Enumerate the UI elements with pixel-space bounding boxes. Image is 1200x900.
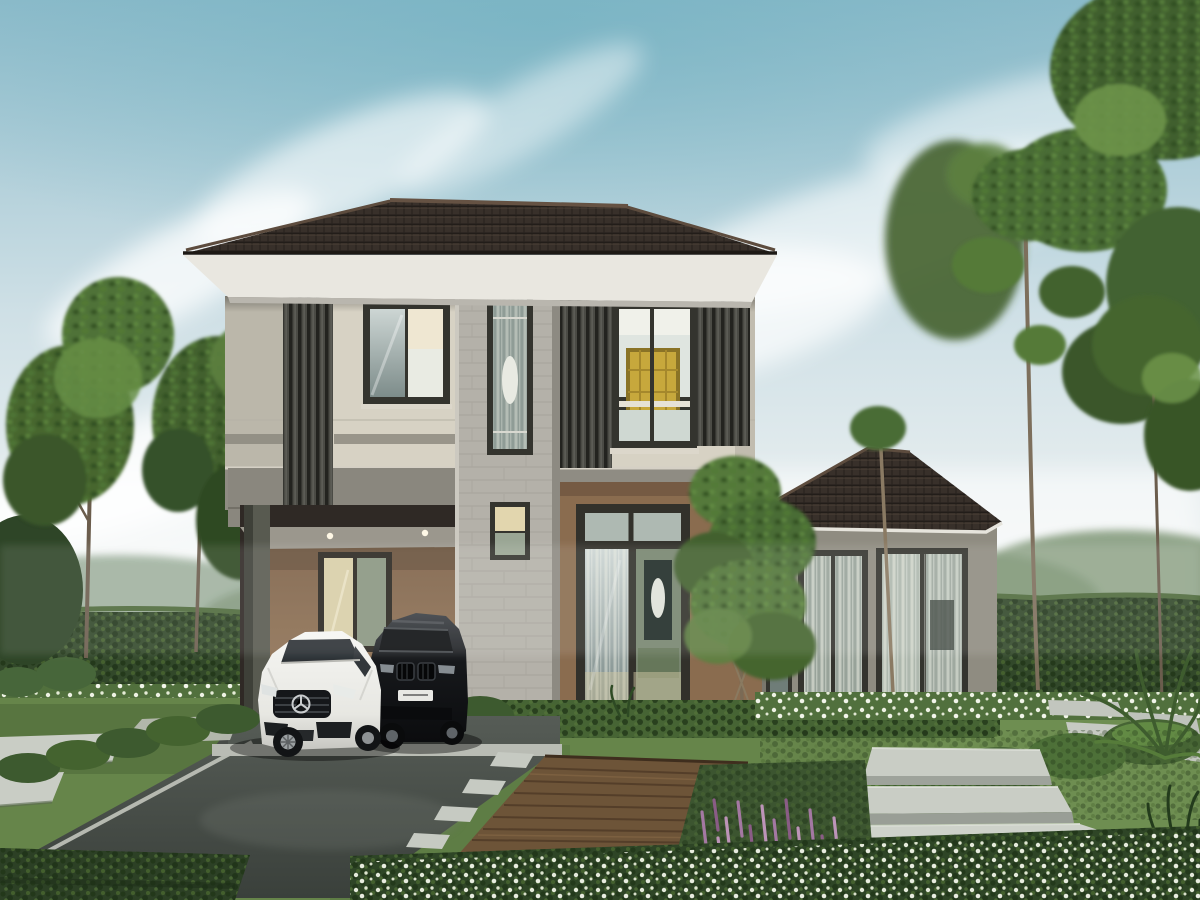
downlight [422,530,428,536]
suv-headlight [380,664,394,673]
upper-left-window [361,302,452,409]
upper-right-window [610,302,699,454]
window-sill [361,404,452,409]
suv-grille [397,663,414,680]
window-sculpture [502,356,518,404]
louver-band-left [283,296,333,506]
pier-tall-window [487,290,533,455]
louver-band-center [560,296,612,468]
wall-stripe-b [334,434,455,444]
house-rendering-image [0,0,1200,900]
roof-fascia [183,255,777,302]
louver-band-right [697,300,750,446]
scene-canvas [0,0,1200,900]
wall-stripe-a [225,434,283,444]
hedge-ball [36,657,96,691]
suv-bumper-intake [380,706,452,720]
downlight [327,533,333,539]
atmosphere-haze [0,545,1200,655]
bumper-intake-right [316,722,352,738]
upper-wall-shade-left [225,296,287,472]
front-tree-leaves [850,406,906,450]
